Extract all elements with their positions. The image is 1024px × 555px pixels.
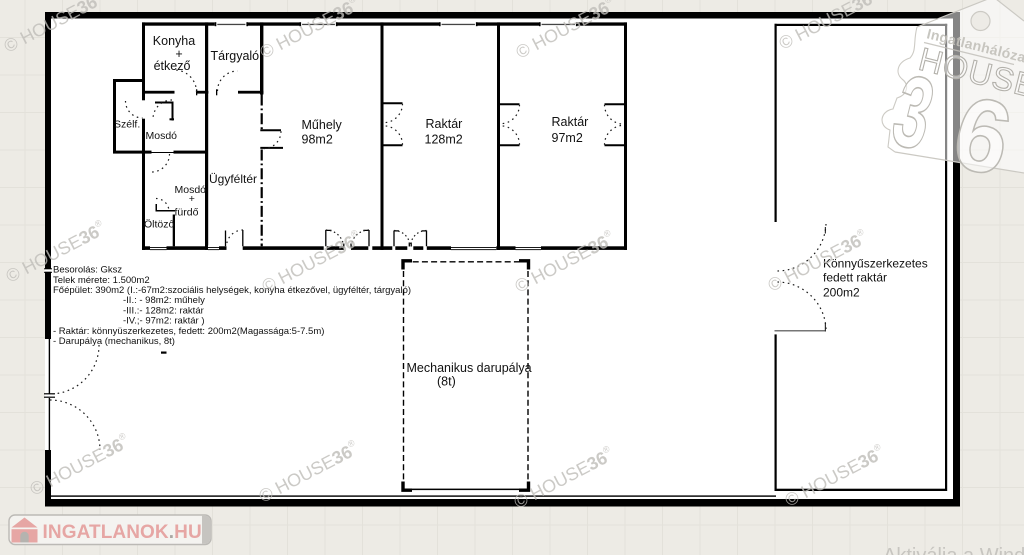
svg-text:fürdő: fürdő [175, 206, 199, 218]
svg-text:Öltöző: Öltöző [144, 219, 175, 231]
svg-text:Műhely: Műhely [302, 118, 343, 132]
svg-text:128m2: 128m2 [425, 133, 463, 147]
svg-text:étkező: étkező [154, 59, 191, 73]
svg-text:200m2: 200m2 [823, 286, 860, 300]
svg-text:- Darupálya (mechanikus, 8t): - Darupálya (mechanikus, 8t) [53, 336, 175, 347]
svg-text:fedett raktár: fedett raktár [823, 271, 887, 285]
svg-text:Mosdó: Mosdó [146, 130, 178, 142]
svg-text:98m2: 98m2 [302, 133, 333, 147]
svg-text:(8t): (8t) [437, 375, 456, 389]
svg-text:Raktár: Raktár [552, 115, 589, 129]
svg-text:Mechanikus darupálya: Mechanikus darupálya [407, 361, 532, 375]
svg-text:Aktiválja a Wind: Aktiválja a Wind [883, 545, 1024, 555]
svg-text:Szélf.: Szélf. [114, 118, 140, 130]
svg-text:Tárgyaló: Tárgyaló [211, 49, 260, 63]
svg-text:INGATLANOK.HU: INGATLANOK.HU [43, 522, 202, 543]
svg-text:Konyha: Konyha [153, 34, 195, 48]
svg-text:97m2: 97m2 [552, 131, 583, 145]
svg-text:Főépület: 390m2 (I.:-67m2:szoc: Főépület: 390m2 (I.:-67m2:szociális hely… [53, 285, 411, 296]
svg-text:Raktár: Raktár [426, 117, 463, 131]
svg-text:Ügyféltér: Ügyféltér [209, 172, 257, 186]
svg-text:+: + [189, 193, 195, 205]
